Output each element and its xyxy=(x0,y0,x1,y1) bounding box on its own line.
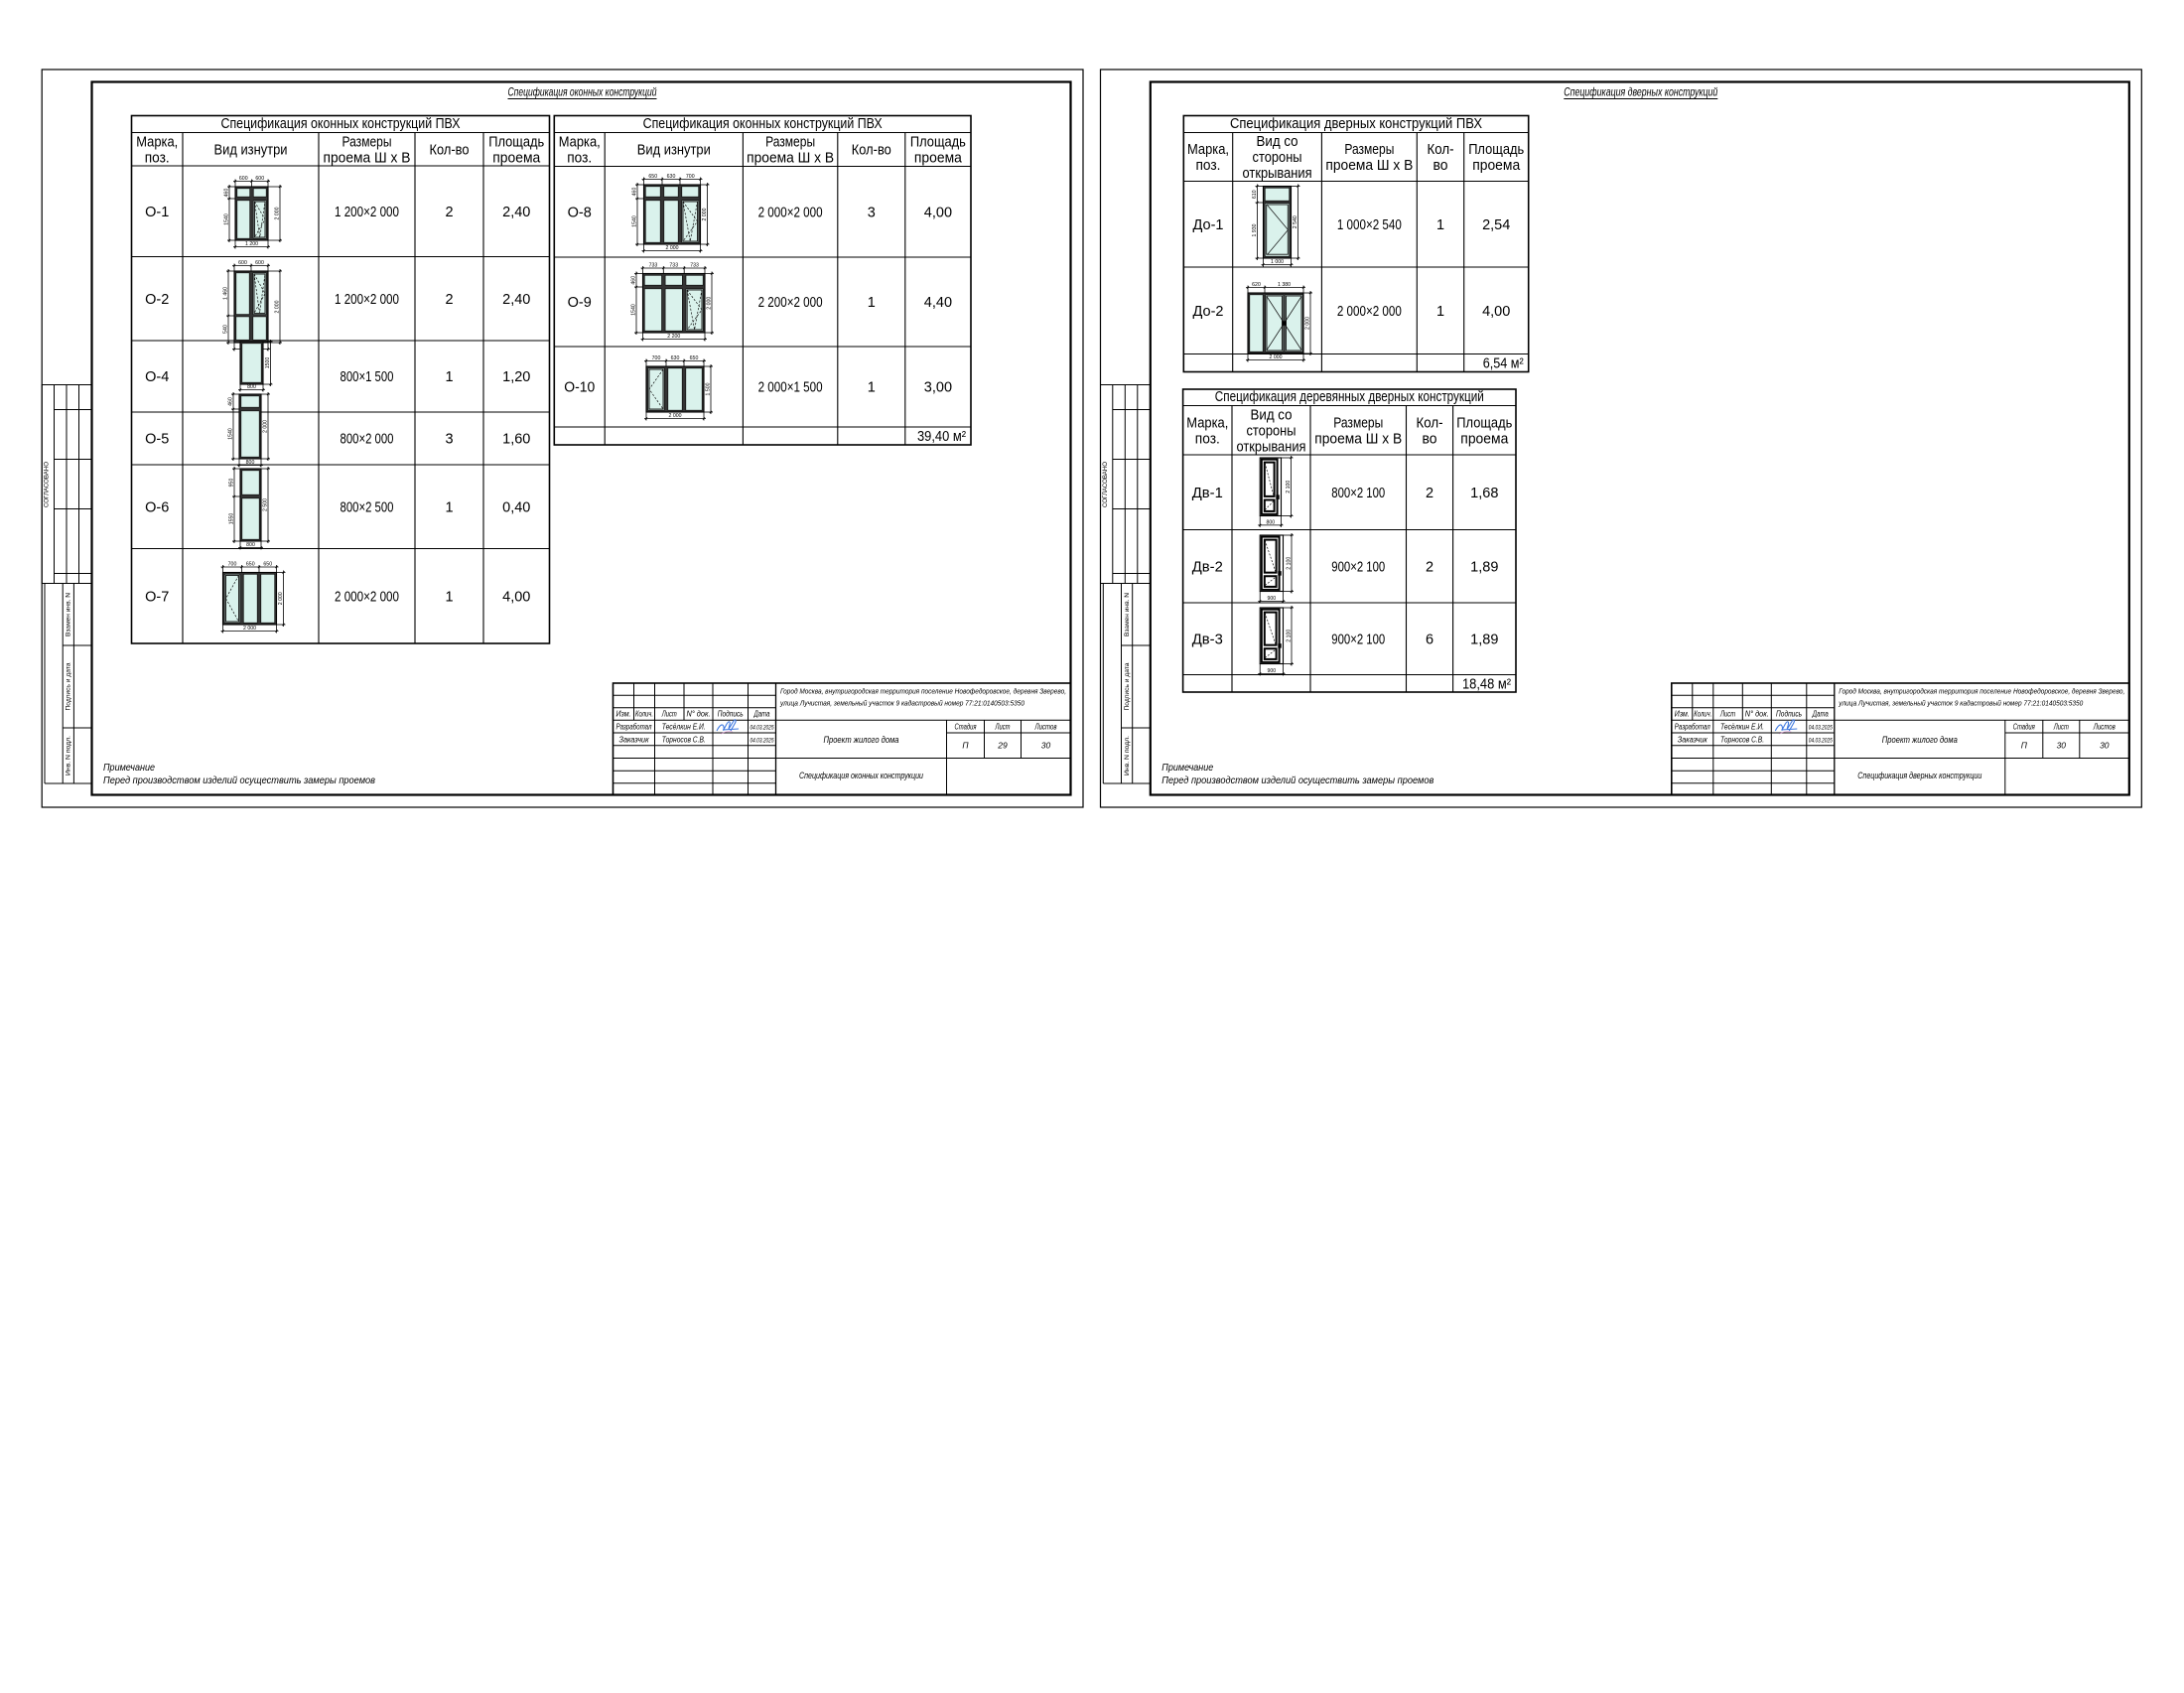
svg-text:Спецификация дверных конструкц: Спецификация дверных конструкции xyxy=(1857,771,1982,781)
svg-text:1 460: 1 460 xyxy=(223,287,229,300)
svg-text:во: во xyxy=(1433,158,1448,174)
svg-text:1,20: 1,20 xyxy=(502,369,530,385)
svg-text:39,40 м²: 39,40 м² xyxy=(917,429,966,445)
svg-text:улица Лучистая, земельный учас: улица Лучистая, земельный участок 9 када… xyxy=(1838,699,2084,708)
svg-text:О-5: О-5 xyxy=(145,432,169,448)
svg-text:1,89: 1,89 xyxy=(1470,632,1498,647)
svg-text:Город Москва, внутригородская: Город Москва, внутригородская территория… xyxy=(780,687,1066,696)
svg-text:2 000: 2 000 xyxy=(275,300,281,313)
svg-text:2,40: 2,40 xyxy=(502,292,530,308)
svg-text:проема: проема xyxy=(914,151,963,167)
svg-text:600: 600 xyxy=(255,176,264,182)
svg-text:Вид со: Вид со xyxy=(1251,407,1293,423)
svg-text:700: 700 xyxy=(228,562,237,568)
svg-text:800: 800 xyxy=(246,460,255,466)
svg-text:600: 600 xyxy=(239,176,248,182)
svg-text:1 380: 1 380 xyxy=(1278,282,1291,288)
svg-text:поз.: поз. xyxy=(1196,158,1221,174)
svg-text:1540: 1540 xyxy=(224,213,230,225)
svg-text:Кол-: Кол- xyxy=(1428,142,1454,158)
svg-text:1550: 1550 xyxy=(229,513,235,525)
svg-text:Инв. N подл.: Инв. N подл. xyxy=(66,736,72,776)
svg-text:29: 29 xyxy=(997,741,1008,751)
svg-text:До-1: До-1 xyxy=(1193,217,1224,233)
svg-text:950: 950 xyxy=(229,479,235,488)
svg-text:Кол-во: Кол-во xyxy=(430,142,470,158)
svg-text:проема Ш х В: проема Ш х В xyxy=(324,150,411,166)
svg-text:2: 2 xyxy=(1426,486,1433,501)
svg-text:Изм.: Изм. xyxy=(616,710,631,719)
svg-text:во: во xyxy=(1423,431,1437,447)
svg-text:поз.: поз. xyxy=(567,151,592,167)
svg-text:П: П xyxy=(2021,741,2028,751)
svg-text:Взамен инв. N: Взамен инв. N xyxy=(66,593,72,636)
svg-text:проема Ш х В: проема Ш х В xyxy=(747,151,834,167)
svg-text:900×2 100: 900×2 100 xyxy=(1331,632,1385,647)
svg-text:1: 1 xyxy=(1436,217,1444,233)
svg-text:О-8: О-8 xyxy=(568,205,592,220)
svg-text:2 540: 2 540 xyxy=(1293,215,1298,228)
svg-text:Подпись и дата: Подпись и дата xyxy=(1124,662,1131,710)
svg-text:Размеры: Размеры xyxy=(342,134,392,150)
svg-text:1: 1 xyxy=(868,295,876,311)
svg-text:Спецификация дверных конструкц: Спецификация дверных конструкций ПВХ xyxy=(1230,116,1482,132)
svg-text:Примечание: Примечание xyxy=(1161,762,1213,774)
svg-text:открывания: открывания xyxy=(1243,166,1312,182)
svg-text:Взамен инв. N: Взамен инв. N xyxy=(1124,593,1131,636)
svg-text:2 000: 2 000 xyxy=(707,297,713,310)
svg-text:3,00: 3,00 xyxy=(924,380,952,396)
svg-text:2 000: 2 000 xyxy=(263,420,269,433)
svg-text:проема: проема xyxy=(1472,158,1521,174)
svg-text:540: 540 xyxy=(223,325,229,334)
svg-text:30: 30 xyxy=(1041,741,1051,751)
svg-text:2 000×2 000: 2 000×2 000 xyxy=(1337,304,1402,320)
svg-text:733: 733 xyxy=(690,263,699,269)
svg-text:4,40: 4,40 xyxy=(924,295,952,311)
svg-text:4,00: 4,00 xyxy=(924,205,952,220)
svg-text:1540: 1540 xyxy=(631,304,637,316)
svg-text:460: 460 xyxy=(228,397,234,406)
svg-text:Листов: Листов xyxy=(1034,723,1057,732)
svg-text:6: 6 xyxy=(1426,632,1433,647)
svg-text:4,00: 4,00 xyxy=(502,589,530,605)
svg-text:1: 1 xyxy=(868,380,876,396)
svg-text:Кол-во: Кол-во xyxy=(852,143,891,159)
svg-text:Заказчик: Заказчик xyxy=(619,736,650,745)
svg-text:1540: 1540 xyxy=(632,215,638,227)
svg-text:Марка,: Марка, xyxy=(1187,142,1229,158)
svg-text:1,60: 1,60 xyxy=(502,432,530,448)
svg-text:0,40: 0,40 xyxy=(502,499,530,515)
svg-text:проема Ш х В: проема Ш х В xyxy=(1325,158,1413,174)
svg-text:630: 630 xyxy=(667,174,676,180)
svg-text:Дата: Дата xyxy=(753,710,770,719)
svg-text:Тесёлкин Е.И.: Тесёлкин Е.И. xyxy=(1720,722,1764,732)
svg-text:2 200×2 000: 2 200×2 000 xyxy=(758,295,823,311)
svg-text:2 100: 2 100 xyxy=(1286,481,1292,494)
svg-text:800: 800 xyxy=(246,542,255,548)
svg-text:650: 650 xyxy=(648,174,657,180)
svg-text:О-2: О-2 xyxy=(145,292,169,308)
svg-text:2 000: 2 000 xyxy=(702,208,708,220)
svg-text:проема: проема xyxy=(1460,431,1509,447)
svg-text:1 000: 1 000 xyxy=(1271,259,1284,265)
svg-text:1: 1 xyxy=(445,369,453,385)
svg-text:открывания: открывания xyxy=(1237,439,1306,455)
svg-text:Торносов С.В.: Торносов С.В. xyxy=(1720,735,1764,745)
svg-text:1: 1 xyxy=(445,589,453,605)
svg-text:1 500: 1 500 xyxy=(706,382,712,395)
svg-text:2 000×2 000: 2 000×2 000 xyxy=(758,205,823,220)
svg-text:Спецификация оконных конструкц: Спецификация оконных конструкций xyxy=(508,85,657,99)
svg-text:Стадия: Стадия xyxy=(955,723,978,732)
svg-text:733: 733 xyxy=(669,263,678,269)
svg-text:6,54 м²: 6,54 м² xyxy=(1483,356,1524,372)
svg-text:проема: проема xyxy=(492,150,541,166)
svg-text:460: 460 xyxy=(224,189,230,198)
svg-text:900: 900 xyxy=(1268,596,1277,602)
svg-text:900×2 100: 900×2 100 xyxy=(1331,559,1385,575)
svg-text:Листов: Листов xyxy=(2093,723,2116,732)
svg-text:Торносов С.В.: Торносов С.В. xyxy=(662,735,706,745)
svg-text:N° док.: N° док. xyxy=(687,710,711,719)
svg-text:Тесёлкин Е.И.: Тесёлкин Е.И. xyxy=(662,722,706,732)
svg-text:2 000: 2 000 xyxy=(275,207,281,219)
svg-text:18,48 м²: 18,48 м² xyxy=(1462,676,1511,692)
svg-text:Размеры: Размеры xyxy=(765,135,815,151)
svg-text:Подпись и дата: Подпись и дата xyxy=(66,662,72,710)
svg-text:04.03.2025: 04.03.2025 xyxy=(1809,738,1833,745)
svg-text:2,40: 2,40 xyxy=(502,205,530,220)
svg-text:поз.: поз. xyxy=(1195,431,1220,447)
svg-text:700: 700 xyxy=(652,355,661,361)
svg-text:О-9: О-9 xyxy=(568,295,592,311)
svg-text:Размеры: Размеры xyxy=(1344,142,1394,158)
svg-text:Стадия: Стадия xyxy=(2013,723,2036,732)
svg-text:Заказчик: Заказчик xyxy=(1678,736,1708,745)
svg-text:2: 2 xyxy=(445,292,453,308)
svg-text:проема Ш х В: проема Ш х В xyxy=(1314,431,1402,447)
svg-text:Инв. N подл.: Инв. N подл. xyxy=(1124,736,1131,776)
svg-text:Примечание: Примечание xyxy=(103,762,155,774)
svg-text:Перед производством изделий о: Перед производством изделий осуществить … xyxy=(1161,775,1433,786)
svg-text:СОГЛАСОВАНО: СОГЛАСОВАНО xyxy=(1102,462,1109,507)
svg-text:Проект жилого дома: Проект жилого дома xyxy=(1882,735,1958,746)
svg-text:О-6: О-6 xyxy=(145,499,169,515)
svg-text:30: 30 xyxy=(2100,741,2110,751)
svg-text:620: 620 xyxy=(1252,282,1261,288)
svg-text:460: 460 xyxy=(631,276,637,285)
svg-text:Лист: Лист xyxy=(995,723,1011,732)
svg-text:Спецификация оконных конструкц: Спецификация оконных конструкций ПВХ xyxy=(643,116,883,132)
svg-text:04.03.2025: 04.03.2025 xyxy=(751,725,774,732)
svg-text:Размеры: Размеры xyxy=(1333,415,1383,431)
svg-text:04.03.2025: 04.03.2025 xyxy=(751,738,774,745)
svg-text:О-7: О-7 xyxy=(145,589,169,605)
svg-text:Кол-: Кол- xyxy=(1417,415,1443,431)
svg-text:До-2: До-2 xyxy=(1193,304,1224,320)
svg-text:2 000×2 000: 2 000×2 000 xyxy=(335,589,399,605)
svg-text:Площадь: Площадь xyxy=(488,134,544,150)
svg-text:4,00: 4,00 xyxy=(1482,304,1510,320)
svg-text:О-1: О-1 xyxy=(145,205,169,220)
svg-text:1,89: 1,89 xyxy=(1470,559,1498,575)
svg-text:Спецификация оконных конструкц: Спецификация оконных конструкции xyxy=(799,771,924,781)
svg-text:Спецификация дверных конструкц: Спецификация дверных конструкций xyxy=(1564,85,1717,99)
svg-text:800: 800 xyxy=(247,384,256,390)
svg-text:О-10: О-10 xyxy=(564,380,595,396)
svg-text:Колич.: Колич. xyxy=(635,710,653,719)
svg-text:2 000: 2 000 xyxy=(1270,354,1283,360)
svg-text:О-4: О-4 xyxy=(145,369,169,385)
svg-text:Марка,: Марка, xyxy=(136,134,178,150)
svg-text:460: 460 xyxy=(632,188,638,197)
svg-text:стороны: стороны xyxy=(1247,423,1297,439)
svg-text:733: 733 xyxy=(649,263,658,269)
svg-text:800×2 100: 800×2 100 xyxy=(1331,486,1385,501)
svg-text:2 200: 2 200 xyxy=(667,334,680,340)
svg-text:2,54: 2,54 xyxy=(1482,217,1510,233)
svg-text:650: 650 xyxy=(246,562,255,568)
svg-text:2 000×1 500: 2 000×1 500 xyxy=(758,380,823,396)
svg-text:Площадь: Площадь xyxy=(1456,415,1512,431)
svg-text:улица Лучистая, земельный учас: улица Лучистая, земельный участок 9 када… xyxy=(779,699,1025,708)
svg-text:Лист: Лист xyxy=(1719,710,1735,719)
svg-text:2 000: 2 000 xyxy=(243,626,256,632)
svg-text:800: 800 xyxy=(1267,519,1276,525)
svg-text:2 100: 2 100 xyxy=(1287,630,1293,642)
svg-text:Дв-2: Дв-2 xyxy=(1192,559,1223,575)
svg-text:2 000: 2 000 xyxy=(669,413,682,419)
svg-text:П: П xyxy=(962,741,969,751)
svg-text:СОГЛАСОВАНО: СОГЛАСОВАНО xyxy=(44,462,51,507)
svg-text:2 000: 2 000 xyxy=(1305,317,1311,330)
svg-text:1 200: 1 200 xyxy=(245,241,258,247)
svg-text:3: 3 xyxy=(445,432,453,448)
svg-text:Площадь: Площадь xyxy=(910,135,966,151)
svg-text:600: 600 xyxy=(238,260,247,266)
svg-text:650: 650 xyxy=(263,562,272,568)
svg-text:Площадь: Площадь xyxy=(1468,142,1524,158)
svg-text:Спецификация деревянных дверны: Спецификация деревянных дверных конструк… xyxy=(1215,389,1484,405)
svg-text:650: 650 xyxy=(690,355,699,361)
svg-text:04.03.2025: 04.03.2025 xyxy=(1809,725,1833,732)
svg-text:630: 630 xyxy=(671,355,680,361)
svg-text:2 500: 2 500 xyxy=(263,498,269,511)
svg-text:Изм.: Изм. xyxy=(1675,710,1690,719)
svg-text:1: 1 xyxy=(1436,304,1444,320)
svg-text:900: 900 xyxy=(1268,668,1277,674)
svg-text:N° док.: N° док. xyxy=(1745,710,1769,719)
svg-text:Лист: Лист xyxy=(661,710,677,719)
svg-text:Вид изнутри: Вид изнутри xyxy=(214,142,288,158)
svg-text:1 200×2 000: 1 200×2 000 xyxy=(335,292,399,308)
svg-text:1 200×2 000: 1 200×2 000 xyxy=(335,205,399,220)
svg-text:2 100: 2 100 xyxy=(1287,557,1293,570)
svg-text:2 000: 2 000 xyxy=(666,245,679,251)
svg-text:700: 700 xyxy=(686,174,695,180)
svg-text:Дв-3: Дв-3 xyxy=(1192,632,1223,647)
svg-text:Проект жилого дома: Проект жилого дома xyxy=(824,735,899,746)
svg-text:Марка,: Марка, xyxy=(1186,415,1228,431)
svg-text:Подпись: Подпись xyxy=(718,710,744,719)
svg-text:Дв-1: Дв-1 xyxy=(1192,486,1223,501)
svg-text:1540: 1540 xyxy=(228,428,234,440)
svg-text:1: 1 xyxy=(445,499,453,515)
svg-text:1,68: 1,68 xyxy=(1470,486,1498,501)
svg-text:поз.: поз. xyxy=(145,150,170,166)
svg-text:Спецификация оконных конструкц: Спецификация оконных конструкций ПВХ xyxy=(221,116,461,132)
svg-text:Дата: Дата xyxy=(1812,710,1829,719)
svg-text:610: 610 xyxy=(1252,190,1258,199)
svg-text:Разработал: Разработал xyxy=(1675,723,1710,732)
svg-text:2: 2 xyxy=(445,205,453,220)
svg-text:800×2 500: 800×2 500 xyxy=(341,499,394,515)
svg-text:800×1 500: 800×1 500 xyxy=(341,369,394,385)
svg-text:2 000: 2 000 xyxy=(278,592,284,605)
svg-text:800×2 000: 800×2 000 xyxy=(341,432,394,448)
svg-text:Марка,: Марка, xyxy=(559,135,601,151)
svg-text:1500: 1500 xyxy=(265,357,271,369)
svg-text:Разработал: Разработал xyxy=(616,723,652,732)
svg-text:стороны: стороны xyxy=(1253,150,1302,166)
svg-text:600: 600 xyxy=(255,260,264,266)
svg-text:Перед производством изделий о: Перед производством изделий осуществить … xyxy=(103,775,375,786)
svg-text:30: 30 xyxy=(2057,741,2067,751)
svg-text:Город Москва, внутригородская: Город Москва, внутригородская территория… xyxy=(1839,687,2124,696)
svg-text:Вид изнутри: Вид изнутри xyxy=(637,143,711,159)
svg-text:Колич.: Колич. xyxy=(1694,710,1711,719)
svg-text:1 000×2 540: 1 000×2 540 xyxy=(1337,217,1402,233)
svg-text:Лист: Лист xyxy=(2053,723,2069,732)
svg-text:Вид со: Вид со xyxy=(1257,134,1298,150)
svg-text:1 930: 1 930 xyxy=(1252,223,1258,236)
svg-text:Подпись: Подпись xyxy=(1776,710,1802,719)
svg-text:3: 3 xyxy=(868,205,876,220)
svg-text:2: 2 xyxy=(1426,559,1433,575)
